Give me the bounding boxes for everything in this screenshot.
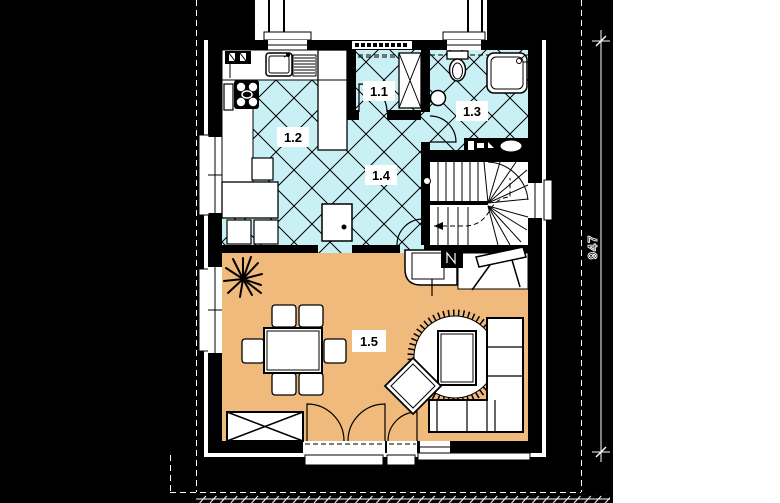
room-label-1-2: 1.2 — [277, 127, 309, 147]
kitchen-table — [222, 182, 278, 218]
floor-plan-page: 947 — [0, 0, 780, 503]
window-seat — [227, 412, 303, 441]
radiator — [224, 84, 233, 110]
svg-text:1.4: 1.4 — [372, 168, 391, 183]
meter-box — [225, 51, 251, 64]
chair — [272, 373, 296, 395]
room-label-1-4: 1.4 — [365, 165, 397, 185]
floor-plan-canvas: 947 — [0, 0, 780, 503]
room-label-1-3: 1.3 — [456, 101, 488, 121]
chair — [299, 373, 323, 395]
dimension-value: 947 — [585, 235, 600, 260]
kitchen-chair — [254, 220, 278, 244]
kitchen-chair — [227, 220, 251, 244]
fireplace-chimney — [441, 246, 463, 268]
kitchen-chair — [252, 158, 273, 180]
chair — [324, 339, 346, 363]
svg-text:1.2: 1.2 — [284, 130, 302, 145]
svg-text:1.3: 1.3 — [463, 104, 481, 119]
glass-block-window — [352, 41, 412, 49]
dining-table — [264, 328, 322, 373]
coffee-table — [438, 331, 476, 385]
bottom-ruler — [196, 494, 610, 503]
drainer — [293, 55, 316, 76]
kitchen-tall-cabinet — [318, 50, 347, 150]
wall-basin — [431, 91, 446, 106]
svg-text:1.5: 1.5 — [360, 334, 378, 349]
toilet-tank — [447, 51, 468, 59]
room-label-1-1: 1.1 — [363, 81, 395, 101]
room-label-1-5: 1.5 — [352, 330, 386, 352]
chair — [242, 339, 264, 363]
chair — [272, 305, 296, 327]
kitchen-door-leaf — [322, 204, 352, 241]
svg-text:1.1: 1.1 — [370, 84, 388, 99]
chair — [299, 305, 323, 327]
paper-margin-right — [613, 0, 780, 503]
toilet-bowl — [450, 59, 466, 81]
